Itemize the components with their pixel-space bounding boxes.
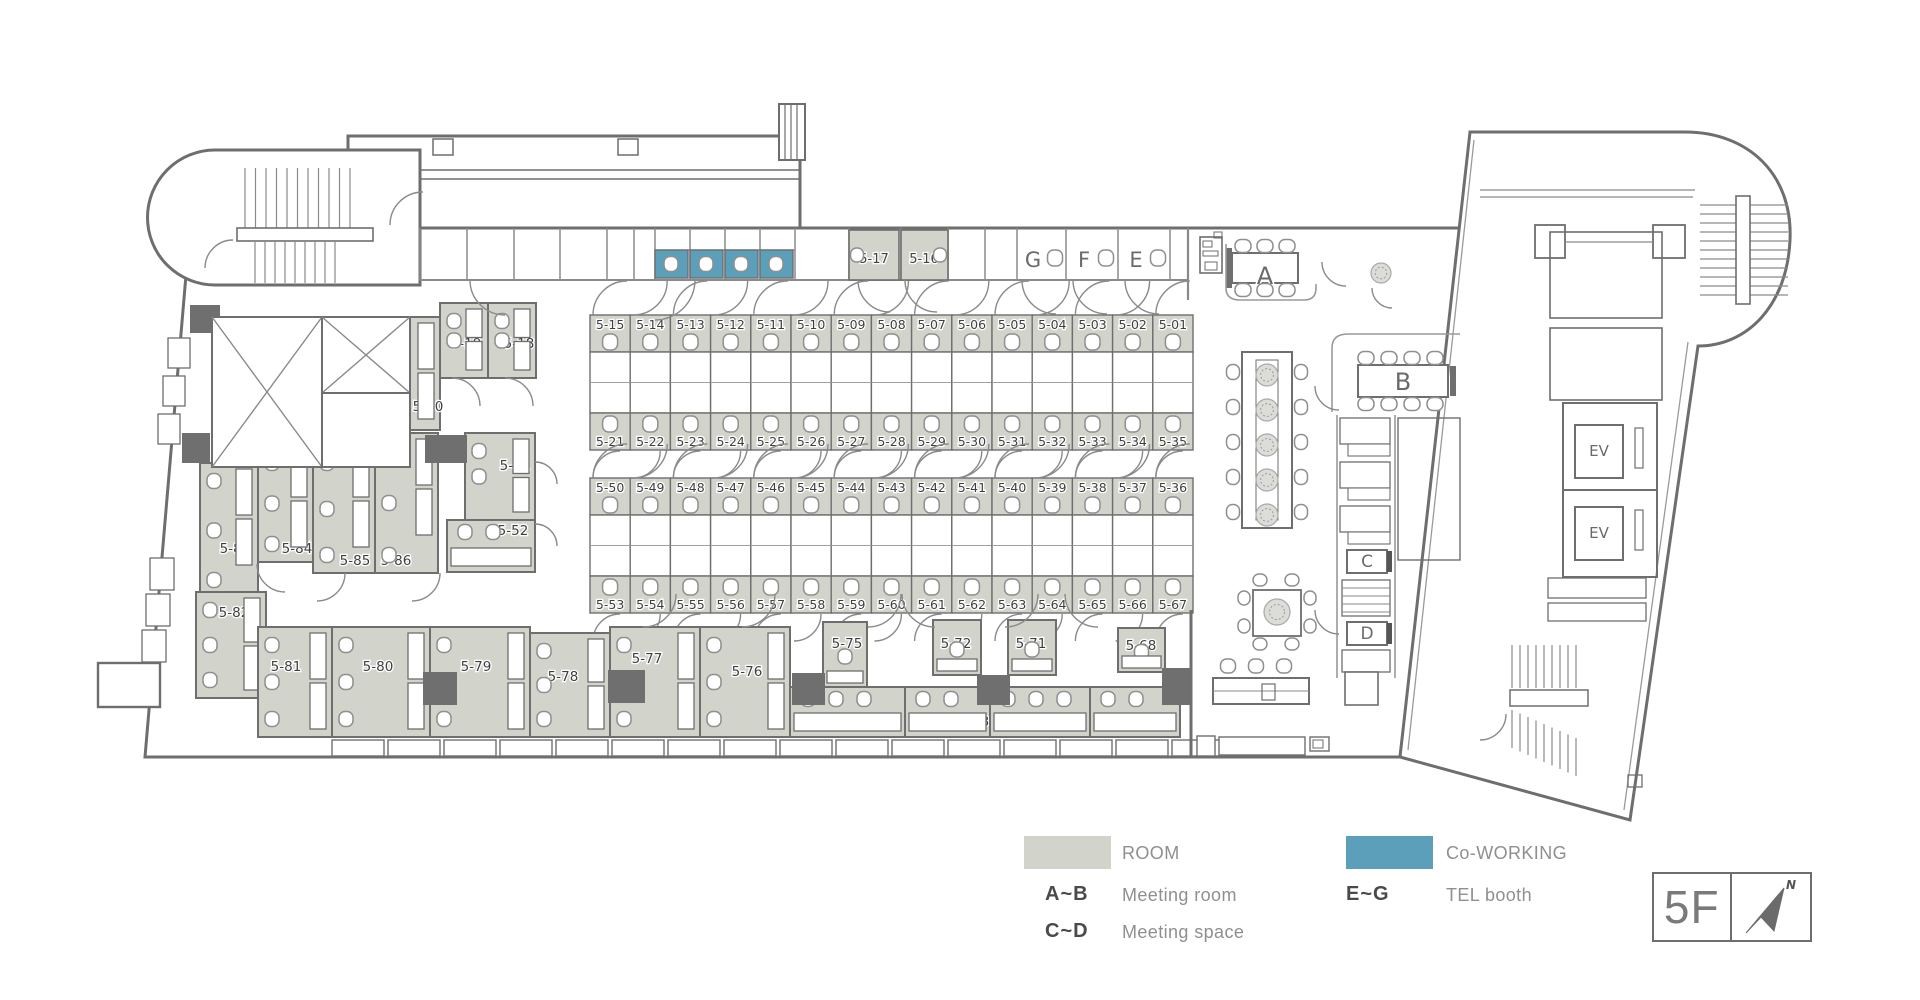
desk [768, 683, 784, 729]
locker [1060, 740, 1112, 756]
cabinet [146, 594, 170, 626]
locker [556, 740, 608, 756]
cubicle-5-32-label: 5-32 [1038, 434, 1066, 449]
cubicle-5-56-label: 5-56 [717, 597, 745, 612]
door-arc-icon [1116, 281, 1150, 315]
duct [1653, 225, 1685, 258]
locker [444, 740, 496, 756]
desk [408, 633, 424, 679]
chair-icon [339, 712, 353, 727]
elevator-EV-label: EV [1589, 524, 1609, 542]
desk [678, 683, 694, 729]
chair-icon [537, 644, 551, 659]
chair-icon [804, 334, 819, 350]
door-arc-icon [874, 614, 901, 641]
desk [418, 373, 434, 419]
chair-icon [804, 416, 819, 432]
chair-icon [1404, 398, 1420, 411]
locker [1197, 736, 1215, 756]
stair-landing [237, 228, 373, 241]
core-block [1162, 668, 1190, 705]
chair-icon [851, 248, 864, 262]
door-arc-icon [955, 451, 982, 478]
chair-icon [683, 497, 698, 513]
chair-icon [683, 579, 698, 595]
chair-icon [707, 712, 721, 727]
chair-icon [723, 334, 738, 350]
door-arc-icon [794, 614, 821, 641]
chair-icon [1295, 470, 1308, 485]
chair-icon [1227, 435, 1240, 450]
cubicle-5-28-label: 5-28 [877, 434, 905, 449]
cubicle-5-26-label: 5-26 [797, 434, 825, 449]
plant-icon [1256, 364, 1278, 386]
chair-icon [265, 638, 279, 653]
cubicle-5-40-label: 5-40 [998, 480, 1026, 495]
roof-tower [779, 104, 805, 160]
desk [408, 683, 424, 729]
phone-desk [1340, 418, 1390, 444]
locker [892, 740, 944, 756]
door-arc-icon [1075, 451, 1102, 478]
cubicle-5-47-label: 5-47 [717, 480, 745, 495]
door-arc-icon [505, 378, 533, 406]
cubicle-5-13-label: 5-13 [676, 317, 704, 332]
door-arc-icon [874, 451, 901, 478]
chair-icon [1295, 435, 1308, 450]
chair-icon [1238, 591, 1250, 605]
phone-desk [1340, 462, 1390, 488]
chair-icon [458, 525, 472, 540]
locker [1116, 740, 1168, 756]
chair-icon [1045, 497, 1060, 513]
meeting-space-C-label: C [1361, 552, 1373, 572]
door-arc-icon [915, 451, 942, 478]
cubicle-5-60-label: 5-60 [877, 597, 905, 612]
shelf [1342, 650, 1390, 672]
cubicle-5-35-label: 5-35 [1159, 434, 1187, 449]
chair-icon [1358, 352, 1374, 365]
compass-icon: N [1732, 875, 1809, 940]
chair-icon [1227, 400, 1240, 415]
door-arc-icon [1125, 280, 1159, 314]
cubicle-5-42-label: 5-42 [918, 480, 946, 495]
chair-icon [603, 416, 618, 432]
meeting-room-B-label: B [1395, 368, 1411, 396]
chair-icon [1249, 659, 1264, 673]
chair-icon [944, 692, 958, 707]
core-block [792, 673, 825, 705]
room-5-52-label: 5-52 [498, 523, 529, 539]
door-arc-icon [1022, 280, 1056, 314]
legend-meeting-space-key: C~D [1045, 920, 1089, 943]
cubicle-5-36-label: 5-36 [1159, 480, 1187, 495]
compass-north-label: N [1786, 878, 1796, 892]
door-arc-icon [412, 573, 440, 601]
chair-icon [1227, 365, 1240, 380]
locker [1004, 740, 1056, 756]
locker [948, 740, 1000, 756]
cubicle-5-24-label: 5-24 [717, 434, 745, 449]
chair-icon [1235, 240, 1251, 253]
chair-icon [1358, 398, 1374, 411]
floorplan-drawing: 5-175-16GFE5-155-215-145-225-135-235-125… [0, 0, 1920, 1000]
cubicle-5-12-label: 5-12 [717, 317, 745, 332]
door-arc-icon [794, 451, 821, 478]
core-block [977, 675, 1010, 705]
cabinet [158, 414, 180, 444]
plant-icon [1256, 469, 1278, 491]
chair-icon [884, 416, 899, 432]
desk [937, 659, 977, 671]
chair-icon [472, 469, 486, 484]
chair-icon [763, 579, 778, 595]
door-arc-icon [1372, 288, 1392, 308]
chair-icon [1099, 250, 1114, 266]
cubicle-5-44-label: 5-44 [837, 480, 865, 495]
chair-icon [1125, 334, 1140, 350]
floorplan-canvas: 5-175-16GFE5-155-215-145-225-135-235-125… [0, 0, 1920, 1000]
desk [508, 633, 524, 679]
door-arc-icon [593, 451, 620, 478]
cubicle-5-03-label: 5-03 [1078, 317, 1106, 332]
chair-icon [1125, 579, 1140, 595]
core-block [423, 672, 457, 705]
chair-icon [683, 334, 698, 350]
chair-icon [265, 496, 279, 511]
av-board [1387, 623, 1392, 644]
room-5-77-label: 5-77 [632, 651, 663, 667]
chair-icon [1285, 638, 1299, 650]
cabinet [163, 376, 185, 406]
desk [588, 639, 604, 682]
cubicle-5-31-label: 5-31 [998, 434, 1026, 449]
chair-icon [1005, 497, 1020, 513]
desk [678, 633, 694, 679]
plant-icon [1256, 434, 1278, 456]
legend-meeting-room-label: Meeting room [1122, 885, 1237, 906]
chair-icon [1295, 365, 1308, 380]
chair-icon [723, 579, 738, 595]
chair-icon [1085, 579, 1100, 595]
door-arc-icon [915, 281, 949, 315]
chair-icon [1221, 659, 1236, 673]
chair-icon [537, 678, 551, 693]
chair-icon [617, 712, 631, 727]
floor-number: 5F [1664, 880, 1720, 934]
shaft [322, 393, 410, 467]
locker [500, 740, 552, 756]
cubicle-5-53-label: 5-53 [596, 597, 624, 612]
cabinet [168, 338, 190, 368]
tel-booth-E-label: E [1129, 248, 1142, 272]
chair-icon [763, 497, 778, 513]
side-table [1345, 672, 1378, 705]
door-arc-icon [714, 281, 748, 315]
chair-icon [320, 548, 334, 563]
cubicle-5-07-label: 5-07 [918, 317, 946, 332]
door-arc-icon [257, 564, 285, 592]
chair-icon [1165, 334, 1180, 350]
door-arc-icon [858, 280, 890, 312]
cubicle-5-46-label: 5-46 [757, 480, 785, 495]
shelf [1342, 580, 1390, 616]
chair-icon [924, 579, 939, 595]
locker [724, 740, 776, 756]
chair-icon [1165, 579, 1180, 595]
chair-icon [1285, 574, 1299, 586]
room-5-78-label: 5-78 [548, 669, 579, 685]
floor-number-box: 5F [1652, 872, 1731, 942]
chair-icon [950, 642, 964, 657]
chair-icon [1025, 642, 1039, 657]
door-arc-icon [633, 451, 660, 478]
chair-icon [1085, 416, 1100, 432]
chair-icon [1048, 250, 1063, 266]
chair-icon [1235, 284, 1251, 297]
door-arc-icon [535, 462, 557, 484]
wing-column [433, 139, 453, 155]
chair-icon [1005, 334, 1020, 350]
chair-icon [1045, 334, 1060, 350]
chair-icon [1125, 497, 1140, 513]
cubicle-5-39-label: 5-39 [1038, 480, 1066, 495]
locker [332, 740, 384, 756]
locker [1219, 737, 1305, 755]
desk [827, 671, 863, 683]
chair-icon [203, 638, 217, 653]
chair-icon [804, 579, 819, 595]
west-stairwell-outline [148, 150, 421, 285]
chair-icon [1295, 505, 1308, 520]
chair-icon [844, 497, 859, 513]
cubicle-5-67-label: 5-67 [1159, 597, 1187, 612]
desk [1122, 656, 1161, 668]
chair-icon [643, 416, 658, 432]
desk [514, 309, 530, 338]
door-arc-icon [1116, 451, 1143, 478]
chair-icon [1279, 284, 1295, 297]
chair-icon [1125, 416, 1140, 432]
chair-icon [723, 497, 738, 513]
av-board [1226, 248, 1232, 288]
plant-icon [1264, 599, 1290, 625]
chair-icon [603, 579, 618, 595]
chair-icon [964, 416, 979, 432]
chair-icon [664, 257, 678, 272]
cubicle-5-61-label: 5-61 [918, 597, 946, 612]
cubicle-5-25-label: 5-25 [757, 434, 785, 449]
plant-icon [1256, 504, 1278, 526]
door-arc-icon [995, 281, 1029, 315]
cubicle-5-58-label: 5-58 [797, 597, 825, 612]
door-arc-icon [714, 451, 741, 478]
room-5-85-label: 5-85 [340, 553, 371, 569]
chair-icon [495, 314, 509, 329]
chair-icon [1253, 638, 1267, 650]
chair-icon [884, 334, 899, 350]
legend-tel-booth-label: TEL booth [1446, 885, 1532, 906]
plant-icon [1256, 399, 1278, 421]
chair-icon [857, 692, 871, 707]
desk [909, 713, 986, 731]
chair-icon [1085, 334, 1100, 350]
door-arc-icon [1315, 610, 1339, 634]
chair-icon [1427, 398, 1443, 411]
door-arc-icon [1156, 451, 1183, 478]
locker [388, 740, 440, 756]
desk [416, 489, 432, 535]
chair-icon [699, 257, 713, 272]
desk [588, 686, 604, 729]
cubicle-5-65-label: 5-65 [1078, 597, 1106, 612]
chair-icon [916, 692, 930, 707]
wing-column [618, 139, 638, 155]
door-arc-icon [633, 281, 667, 315]
chair-icon [1257, 284, 1273, 297]
desk [451, 548, 531, 566]
desk [1012, 659, 1052, 671]
cubicle-5-15-label: 5-15 [596, 317, 624, 332]
desk [513, 478, 529, 513]
room-5-81-label: 5-81 [271, 659, 302, 675]
desk [513, 439, 529, 474]
cubicle-5-43-label: 5-43 [877, 480, 905, 495]
av-board [1450, 366, 1456, 396]
chair-icon [643, 497, 658, 513]
door-arc-icon [754, 451, 781, 478]
desk [353, 501, 369, 547]
chair-icon [844, 416, 859, 432]
door-arc-icon [593, 281, 627, 315]
door-arc-icon [955, 281, 989, 315]
chair-icon [265, 537, 279, 552]
chair-icon [924, 497, 939, 513]
west-alcove [98, 663, 160, 707]
cubicle-5-22-label: 5-22 [636, 434, 664, 449]
desk [994, 713, 1086, 731]
door-arc-icon [1075, 614, 1102, 641]
chair-icon [1129, 692, 1143, 707]
compass-box: N [1731, 872, 1812, 942]
chair-icon [207, 573, 221, 588]
chair-icon [437, 638, 451, 653]
legend-meeting-room-key: A~B [1045, 883, 1089, 906]
cubicle-5-33-label: 5-33 [1078, 434, 1106, 449]
chair-icon [1277, 659, 1292, 673]
cubicle-5-01-label: 5-01 [1159, 317, 1187, 332]
door-arc-icon [452, 378, 480, 406]
chair-icon [707, 638, 721, 653]
chair-icon [447, 314, 461, 329]
room-5-76-label: 5-76 [732, 664, 763, 680]
chair-icon [1151, 250, 1166, 266]
chair-icon [707, 675, 721, 690]
chair-icon [339, 638, 353, 653]
locker [836, 740, 888, 756]
chair-icon [1165, 416, 1180, 432]
chair-icon [1101, 692, 1115, 707]
chair-icon [1057, 692, 1071, 707]
room-swatch [1024, 836, 1111, 869]
cubicle-5-23-label: 5-23 [676, 434, 704, 449]
chair-icon [1005, 416, 1020, 432]
chair-icon [1165, 497, 1180, 513]
legend-coworking-label: Co-WORKING [1446, 843, 1567, 864]
desk [466, 309, 482, 338]
chair-icon [804, 497, 819, 513]
cubicle-5-55-label: 5-55 [676, 597, 704, 612]
cubicle-5-41-label: 5-41 [958, 480, 986, 495]
door-arc-icon [754, 281, 788, 315]
chair-icon [1257, 240, 1273, 253]
door-arc-icon [1073, 280, 1107, 314]
door-arc-icon [1035, 451, 1062, 478]
desk [310, 683, 326, 729]
chair-icon [472, 444, 486, 459]
door-arc-icon [834, 451, 861, 478]
chair-icon [763, 416, 778, 432]
chair-icon [643, 579, 658, 595]
cubicle-5-64-label: 5-64 [1038, 597, 1066, 612]
room-5-80-label: 5-80 [363, 659, 394, 675]
door-arc-icon [995, 451, 1022, 478]
chair-icon [723, 416, 738, 432]
chair-icon [643, 334, 658, 350]
chair-icon [964, 334, 979, 350]
cubicle-5-09-label: 5-09 [837, 317, 865, 332]
phone-desk [1348, 444, 1390, 456]
desk [794, 713, 901, 731]
chair-icon [382, 548, 396, 563]
plant-icon [1371, 263, 1391, 283]
chair-icon [934, 248, 947, 262]
cubicle-5-27-label: 5-27 [837, 434, 865, 449]
chair-icon [838, 649, 852, 664]
chair-icon [1045, 416, 1060, 432]
chair-icon [1304, 619, 1316, 633]
cubicle-5-37-label: 5-37 [1119, 480, 1147, 495]
tel-booth-G-label: G [1025, 248, 1041, 272]
chair-icon [1381, 352, 1397, 365]
door-arc-icon [535, 524, 557, 546]
chair-icon [486, 525, 500, 540]
chair-icon [1238, 619, 1250, 633]
cubicle-5-29-label: 5-29 [918, 434, 946, 449]
stair-landing [1736, 196, 1750, 304]
chair-icon [447, 333, 461, 348]
chair-icon [265, 675, 279, 690]
chair-icon [1295, 400, 1308, 415]
chair-icon [495, 333, 509, 348]
chair-icon [829, 692, 843, 707]
door-arc-icon [1322, 262, 1346, 286]
chair-icon [683, 416, 698, 432]
floor-badge: 5F N [1652, 872, 1812, 942]
chair-icon [769, 257, 783, 272]
cubicle-5-59-label: 5-59 [837, 597, 865, 612]
cubicle-5-11-label: 5-11 [757, 317, 785, 332]
chair-icon [617, 638, 631, 653]
locker [780, 740, 832, 756]
monitor-icon [1313, 740, 1323, 748]
coworking-swatch [1346, 836, 1433, 869]
door-arc-icon [1156, 281, 1190, 315]
desk [466, 342, 482, 371]
desk [291, 501, 307, 547]
cubicle-5-30-label: 5-30 [958, 434, 986, 449]
chair-icon [265, 712, 279, 727]
